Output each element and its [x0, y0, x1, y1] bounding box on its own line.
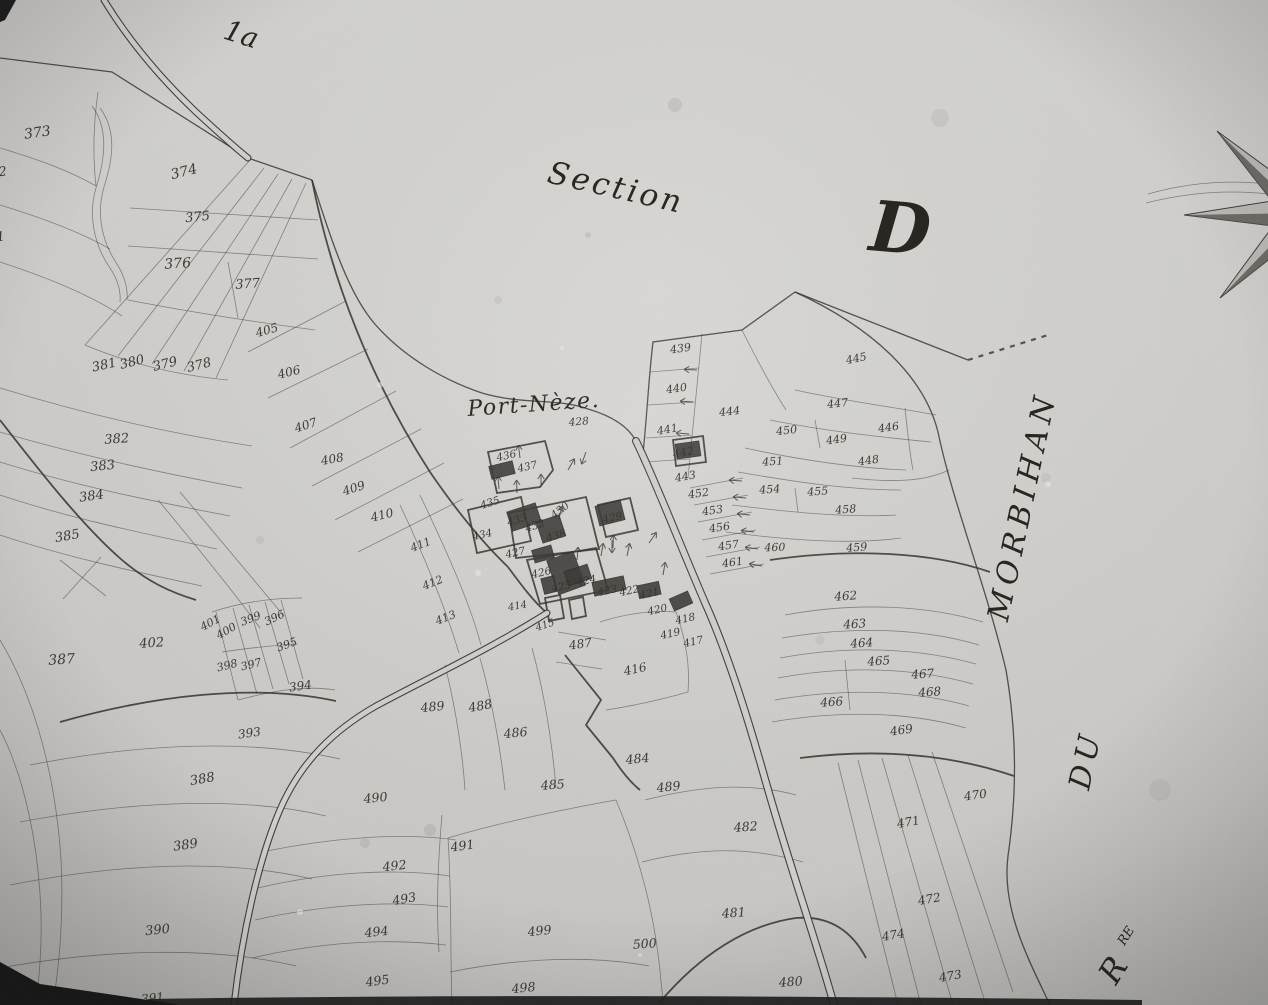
- parcel-label: 464: [849, 635, 874, 651]
- cadastral-map-scan: 3733743753763773723713813803793783823833…: [0, 0, 1268, 1005]
- parcel-label: 486: [502, 724, 528, 742]
- parcel-label: 482: [732, 818, 758, 835]
- parcel-label: 375: [185, 209, 211, 227]
- parcel-label: 377: [235, 276, 262, 293]
- parcel-label: 376: [164, 255, 192, 273]
- parcel-label: 455: [806, 484, 829, 499]
- parcel-label: 484: [624, 750, 650, 768]
- parcel-label: 428: [567, 415, 589, 428]
- parcel-label: 463: [842, 616, 867, 632]
- parcel-label: 447: [826, 396, 849, 411]
- parcel-label: 466: [819, 694, 844, 710]
- parcel-label: 492: [381, 857, 407, 875]
- map-canvas: 3733743753763773723713813803793783823833…: [0, 0, 1268, 1005]
- parcel-label: 467: [910, 666, 935, 682]
- parcel-label: 494: [363, 923, 389, 941]
- parcel-label: 458: [834, 502, 857, 517]
- parcel-label: 450: [775, 423, 798, 438]
- parcel-label: 460: [763, 541, 785, 555]
- parcel-label: 489: [655, 778, 681, 796]
- parcel-label: 444: [718, 404, 741, 419]
- parcel-label: 382: [104, 431, 130, 448]
- section-letter: D: [865, 184, 935, 272]
- parcel-label: 498: [510, 979, 536, 997]
- parcel-label: 481: [720, 904, 746, 921]
- parcel-label: 499: [526, 922, 552, 940]
- parcel-label: 402: [138, 635, 165, 652]
- parcel-label: 387: [48, 651, 76, 669]
- parcel-label: 480: [777, 973, 803, 990]
- parcel-label: 500: [632, 935, 657, 952]
- parcel-label: 454: [758, 482, 781, 497]
- parcel-label: 468: [917, 684, 942, 700]
- parcel-label: 451: [761, 454, 784, 469]
- parcel-label: 459: [845, 540, 868, 555]
- parcel-label: 489: [419, 698, 445, 716]
- paper-background: [0, 0, 1268, 1005]
- parcel-label: 383: [90, 458, 116, 476]
- parcel-label: 490: [362, 789, 388, 807]
- parcel-label: 465: [866, 653, 891, 669]
- parcel-label: 462: [833, 588, 858, 604]
- parcel-label: 390: [145, 922, 171, 940]
- parcel-label: 485: [539, 776, 565, 793]
